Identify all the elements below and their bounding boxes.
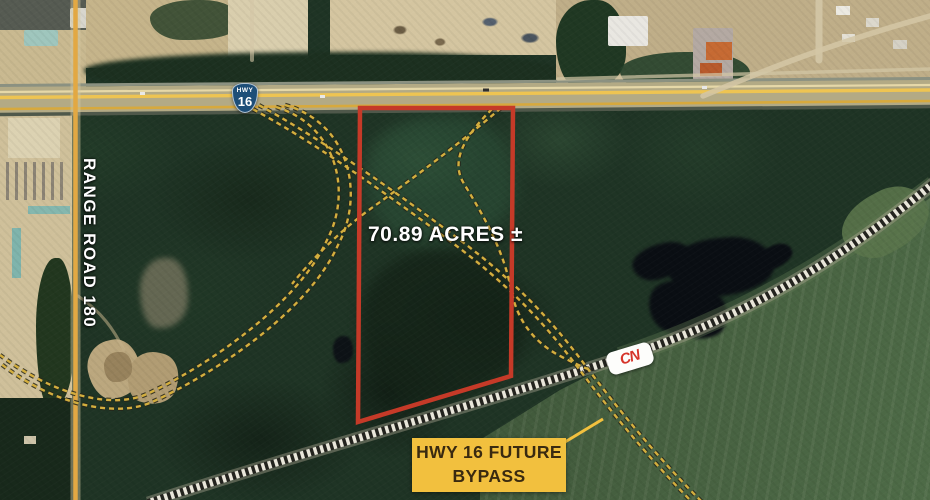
acreage-label: 70.89 ACRES ±	[368, 223, 523, 247]
vehicle-4	[320, 95, 325, 98]
map-overlay-svg	[0, 0, 930, 500]
hwy-shield-number: 16	[233, 95, 257, 108]
bypass-loop-underlay-1	[0, 105, 351, 409]
bypass-loop-underlay-2	[0, 107, 339, 400]
vehicle-2	[483, 89, 489, 92]
range-road-label: RANGE ROAD 180	[79, 158, 99, 328]
vehicle-3	[702, 86, 707, 89]
bypass-loop-line-1	[0, 105, 351, 409]
bypass-loop-line-2	[0, 107, 339, 400]
bypass-label: HWY 16 FUTURE BYPASS	[412, 438, 566, 492]
bypass-label-line1: HWY 16 FUTURE	[416, 441, 562, 465]
aerial-map: HWY 16 RANGE ROAD 180 70.89 ACRES ± CN H…	[0, 0, 930, 500]
rail-right-of-way	[620, 185, 930, 357]
vehicle-1	[140, 92, 145, 95]
bypass-callout-line	[565, 419, 603, 442]
bypass-label-line2: BYPASS	[452, 465, 525, 489]
